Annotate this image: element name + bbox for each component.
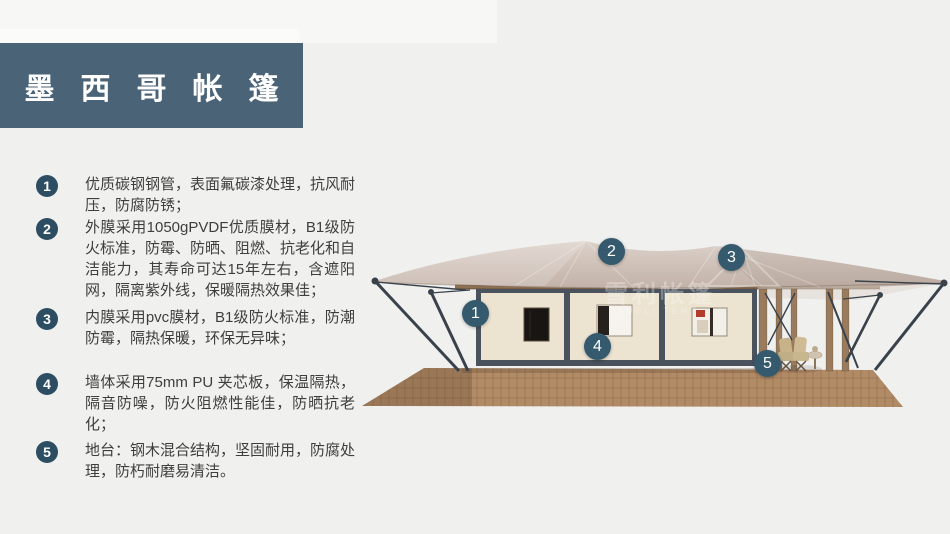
camp-chairs [774, 336, 822, 373]
slide: 墨西哥帐篷 1 优质碳钢钢管，表面氟碳漆处理，抗风耐压，防腐防锈； 2 外膜采用… [0, 0, 950, 534]
tent-marker-1: 1 [462, 300, 489, 327]
tent-illustration: 雪利帐篷 XUELI TENT [0, 0, 950, 534]
tent-marker-4: 4 [584, 333, 611, 360]
watermark-en-text: XUELI TENT [617, 306, 699, 316]
tent-marker-5: 5 [754, 350, 781, 377]
tent-marker-2: 2 [598, 238, 625, 265]
tent-marker-3: 3 [718, 244, 745, 271]
window-left [524, 308, 549, 341]
wood-deck [362, 368, 903, 407]
watermark-cn-text: 雪利帐篷 [604, 280, 716, 308]
left-braces [372, 278, 470, 371]
